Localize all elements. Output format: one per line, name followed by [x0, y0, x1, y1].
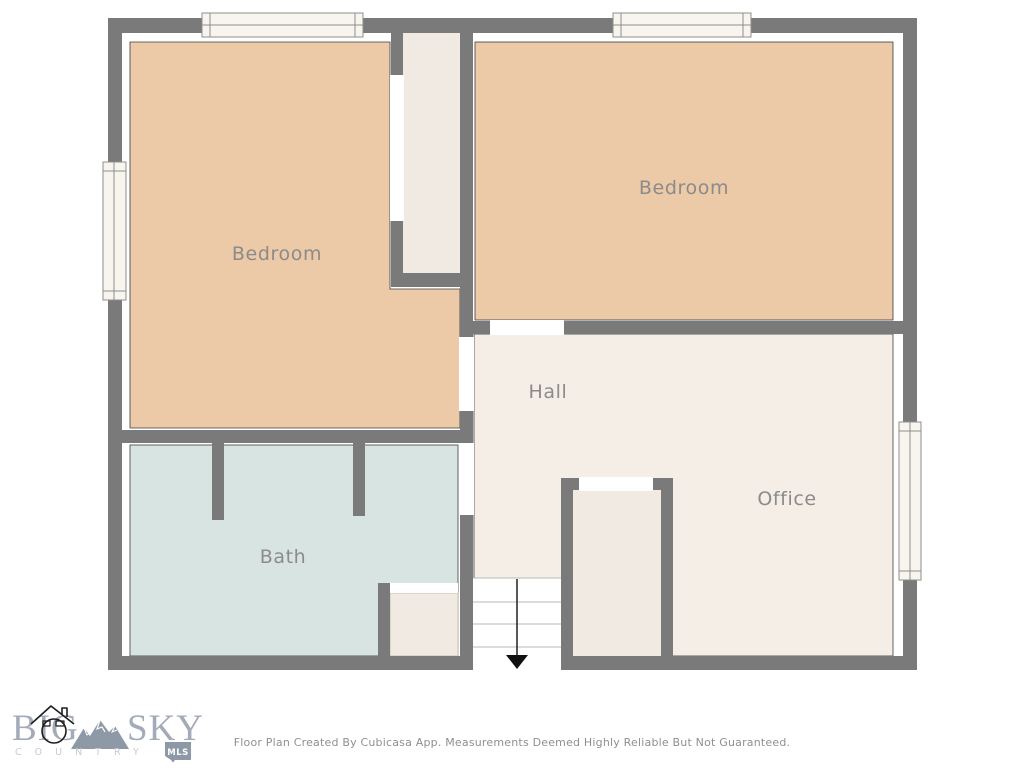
staircase [473, 578, 561, 670]
room-label-office: Office [757, 488, 816, 510]
door-bath [459, 443, 474, 515]
door-closet1 [390, 75, 404, 221]
door-nook [390, 583, 458, 593]
wall-closet2-right [661, 478, 673, 656]
room-label-bedroom-right: Bedroom [639, 177, 729, 199]
window-symbol-top-right [613, 13, 751, 37]
mls-badge-label: MLS [167, 748, 189, 758]
rooms [130, 33, 893, 656]
floor-plan-page: Bedroom Bedroom Hall Office Bath BIG SKY [0, 0, 1024, 768]
door-bedroom-right [490, 320, 564, 335]
window-symbol-top-left [202, 13, 363, 37]
disclaimer-text: Floor Plan Created By Cubicasa App. Meas… [0, 736, 1024, 749]
closet-between-bedrooms [403, 33, 461, 273]
wall-left [108, 18, 122, 670]
floor-plan: Bedroom Bedroom Hall Office Bath [0, 0, 1024, 768]
door-bedroom-left [459, 337, 474, 411]
window-symbol-right [899, 422, 921, 580]
wall-bath-top [108, 430, 473, 443]
wall-stairs-right [561, 478, 573, 656]
footer: BIG SKY COUNTRY MLS [0, 690, 1024, 768]
nook-bath [390, 593, 458, 656]
wall-bath-stub1 [212, 443, 224, 520]
room-label-bath: Bath [260, 546, 307, 568]
big-sky-country-mls-logo: BIG SKY COUNTRY MLS [12, 697, 202, 763]
room-label-hall: Hall [529, 381, 568, 403]
room-label-bedroom-left: Bedroom [232, 243, 322, 265]
window-symbol-left [103, 162, 126, 300]
door-closet2 [579, 477, 653, 491]
closet-hall [573, 490, 661, 656]
wall-bath-stub2 [353, 443, 365, 516]
wall-nook-left [378, 583, 390, 656]
